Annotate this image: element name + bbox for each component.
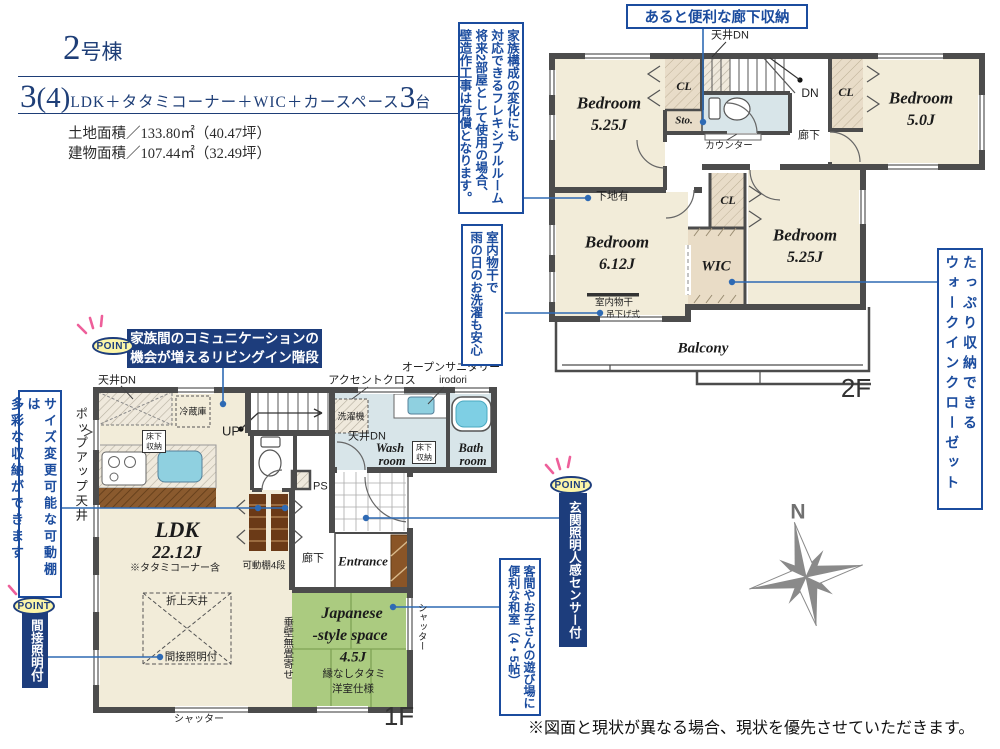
sink-icon — [158, 451, 202, 482]
tatami-note-2: 洋室仕様 — [332, 684, 374, 695]
popup-ceiling-label: ポップアップ天井 — [74, 407, 87, 523]
monohoshi-label: 室内物干 — [595, 298, 633, 308]
open-sanitary-name: irodori — [439, 376, 467, 386]
storage-label: Sto. — [675, 116, 692, 127]
land-area: 土地面積／133.80㎡（40.47坪） — [68, 122, 271, 143]
ps-label: PS — [313, 482, 328, 493]
bedroom1-label: Bedroom — [577, 95, 641, 112]
bedroom1-size: 5.25J — [591, 118, 627, 134]
ceiling-dn-2f-label: 天井DN — [711, 31, 749, 42]
tarekabe-label: 垂壁無畳寄せ — [283, 617, 294, 680]
shelf-label: 可動棚4段 — [242, 561, 285, 571]
bathroom-label-1: Bath — [458, 442, 483, 455]
tsurisage-label: 吊下げ式 — [606, 310, 640, 319]
washer-label: 洗濯機 — [337, 413, 364, 422]
bathtub-icon — [452, 397, 491, 431]
plan-number: 3 — [20, 79, 37, 115]
ldk-label: LDK — [155, 519, 199, 541]
bedroom2-label: Bedroom — [585, 234, 649, 251]
compass-icon — [738, 510, 874, 638]
callout-hall-storage: あると便利な廊下収納 — [626, 4, 808, 29]
tatami-note-1: 縁なしタタミ — [323, 669, 386, 680]
wic-label: WIC — [701, 260, 730, 275]
japanese-room-label-2: -style space — [312, 628, 387, 644]
callout-walk-in-closet: たっぷり収納できる ウォークインクローゼット — [937, 248, 983, 510]
plan-count-suffix: 台 — [415, 95, 430, 111]
point-badge-indirect: POINT — [13, 597, 55, 615]
point-badge-sensor: POINT — [550, 476, 592, 494]
unit-number: 2 — [63, 28, 81, 67]
counter-2f — [705, 134, 761, 140]
toilet-icon-2f — [709, 98, 750, 120]
bathroom-label-2: room — [459, 455, 486, 468]
unit-suffix: 号棟 — [81, 40, 123, 64]
stairs-dn-label: DN — [801, 87, 818, 99]
shutter-bottom-label: シャッター — [174, 715, 224, 725]
floor1-label: 1F — [384, 703, 414, 729]
entrance-label: Entrance — [338, 555, 388, 568]
laundry-bar — [587, 293, 639, 297]
washroom-label-2: room — [378, 455, 405, 468]
shutter-side-label: シャッター — [416, 603, 426, 651]
unit-title: 2号棟 — [63, 28, 123, 68]
accent-cloth-label: アクセントクロス — [328, 376, 415, 387]
popup-ceiling-area — [98, 392, 172, 425]
bedroom4-size: 5.25J — [787, 250, 823, 266]
closet3-label: CL — [720, 194, 735, 206]
building-area: 建物面積／107.44㎡（32.49坪） — [68, 142, 271, 163]
callout-flexible-room: 家族構成の変化にも 対応できるフレキシブルルーム 将来2部屋として使用の場合、 … — [458, 22, 524, 214]
closet2-label: CL — [838, 86, 853, 98]
stove-icon — [102, 452, 146, 485]
japanese-room-size: 4.5J — [340, 651, 366, 666]
plan-paren: (4) — [37, 82, 71, 114]
hallway-1f-label: 廊下 — [302, 554, 324, 565]
underfloor-wash-label: 床下収納 — [412, 441, 436, 464]
underfloor-kitchen-label: 床下収納 — [142, 430, 166, 453]
oriage-label: 折上天井 — [166, 596, 208, 607]
header-rule-top — [18, 76, 458, 77]
hallway-2f-label: 廊下 — [798, 131, 820, 142]
callout-indoor-laundry: 室内物干で 雨の日のお洗濯も安心 — [461, 224, 503, 366]
vanity-icon — [394, 394, 448, 418]
bedroom2-size: 6.12J — [599, 257, 635, 273]
balcony-label: Balcony — [678, 342, 729, 357]
japanese-room-label-1: Japanese — [321, 606, 382, 622]
point-badge-living-stairs: POINT — [92, 337, 134, 355]
floor2-label: 2F — [841, 375, 871, 401]
kitchen-counter — [96, 445, 216, 508]
living-stairs-line2: 機会が増えるリビングイン階段 — [130, 349, 319, 368]
stairs-up-label: UP — [222, 425, 240, 438]
floorplan-page: 2号棟 3(4)LDK＋タタミコーナー＋WIC＋カースペース3台 土地面積／13… — [0, 0, 1000, 749]
stairs-2f — [702, 56, 795, 93]
plan-body: LDK＋タタミコーナー＋WIC＋カースペース — [70, 94, 399, 111]
washroom-label-1: Wash — [376, 442, 404, 455]
indirect-label-plan: 間接照明付 — [165, 652, 218, 663]
callout-living-stairs: 家族間のコミュニケーションの 機会が増えるリビングイン階段 — [127, 329, 322, 368]
header-rule-bottom — [18, 113, 458, 114]
bedroom3-label: Bedroom — [889, 90, 953, 107]
callout-washitsu: 客間やお子さんの遊び場に 便利な和室（4・5帖） — [499, 558, 541, 716]
fridge-label: 冷蔵庫 — [179, 408, 206, 417]
plan-count: 3 — [400, 79, 416, 114]
living-stairs-line1: 家族間のコミュニケーションの — [130, 330, 319, 349]
disclaimer-note: ※図面と現状が異なる場合、現状を優先させていただきます。 — [528, 721, 974, 737]
compass-north-label: N — [790, 502, 805, 523]
callout-adjustable-shelf: サイズ変更可能な可動棚は 多彩な収納ができます — [18, 390, 62, 598]
ceiling-dn-kitchen-label: 天井DN — [98, 376, 136, 387]
ldk-note: ※タタミコーナー含 — [130, 564, 220, 574]
bedroom4-label: Bedroom — [773, 227, 837, 244]
shoe-cabinet — [391, 535, 408, 588]
callout-entrance-sensor: 玄関照明人感センサー付 — [559, 493, 587, 647]
counter-label: カウンター — [705, 141, 753, 151]
shitaji-label: 下地有 — [596, 192, 629, 203]
ldk-size: 22.12J — [152, 543, 202, 561]
bedroom3-size: 5.0J — [907, 113, 935, 129]
closet1-label: CL — [676, 80, 691, 92]
callout-indirect-lighting: 間接照明付 — [22, 612, 48, 688]
plan-summary: 3(4)LDK＋タタミコーナー＋WIC＋カースペース3台 — [20, 79, 430, 116]
